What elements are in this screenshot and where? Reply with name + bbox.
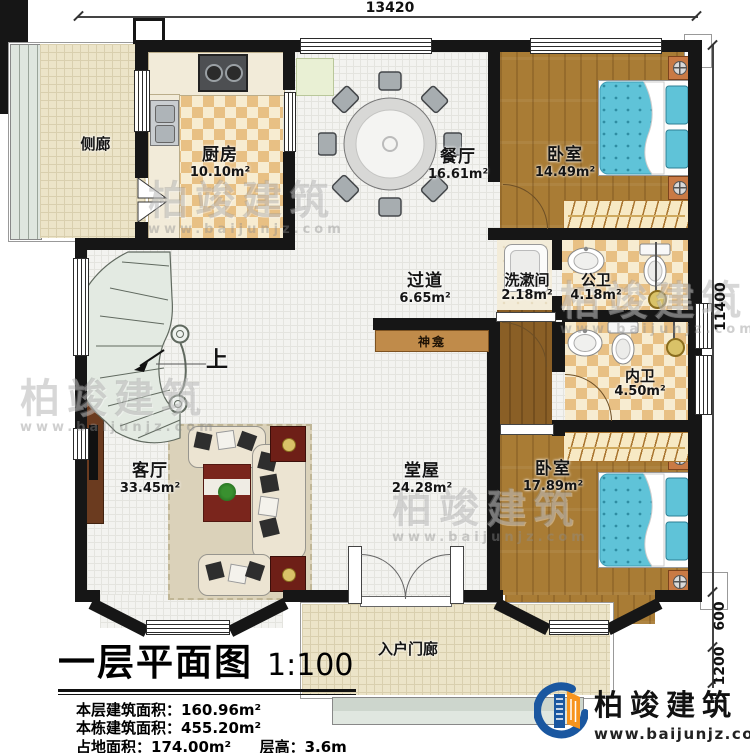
height-label: 层高： bbox=[260, 738, 305, 753]
wall-kitchen-left-2 bbox=[135, 130, 148, 178]
sink-basin bbox=[155, 125, 175, 143]
brand-name: 柏竣建筑 bbox=[594, 682, 750, 724]
floor-plan-canvas: 神龛 bbox=[0, 0, 750, 753]
room-area: 16.61m² bbox=[413, 168, 503, 183]
dim-right-step: 600 bbox=[712, 598, 728, 634]
area-label: 本栋建筑面积： bbox=[76, 719, 181, 737]
bay-bedroom2-window bbox=[549, 620, 609, 635]
room-label-bedroom2: 卧室 17.89m² bbox=[508, 460, 598, 494]
room-area: 6.65m² bbox=[382, 292, 468, 307]
table-lamp-icon bbox=[282, 568, 296, 582]
room-area: 17.89m² bbox=[508, 480, 598, 495]
wall-bath-divider bbox=[562, 310, 688, 322]
room-name: 餐厅 bbox=[413, 148, 503, 168]
room-area: 2.18m² bbox=[491, 289, 563, 304]
side-porch-pillar-top bbox=[0, 0, 28, 28]
plan-scale: 1:100 bbox=[267, 648, 353, 683]
wall-bottom-4 bbox=[655, 590, 702, 602]
room-name: 过道 bbox=[382, 272, 468, 292]
dim-right-main: 11400 bbox=[713, 285, 729, 331]
area-value: 160.96m² bbox=[181, 701, 261, 719]
door-kitchen-sliding bbox=[284, 92, 296, 152]
room-label-washroom: 洗漱间 2.18m² bbox=[491, 272, 563, 304]
shrine-label: 神龛 bbox=[418, 333, 446, 350]
plant-icon bbox=[218, 483, 236, 501]
brand-url: www.baijunjz.com bbox=[594, 725, 750, 743]
sink-basin bbox=[155, 105, 175, 123]
wall-kitchen-left-1 bbox=[135, 40, 148, 70]
room-label-bedroom1: 卧室 14.49m² bbox=[520, 146, 610, 180]
sofa-pillow bbox=[216, 430, 236, 450]
room-label-side-corridor: 侧廊 bbox=[68, 136, 123, 153]
burner-icon bbox=[205, 64, 223, 82]
window-bath-right-1 bbox=[695, 303, 713, 349]
room-label-main-hall: 堂屋 24.28m² bbox=[378, 462, 466, 496]
dim-line-top bbox=[78, 16, 698, 18]
sofa-pillow bbox=[259, 517, 280, 538]
door-frame-bedroom2 bbox=[500, 424, 554, 435]
area-label: 占地面积： bbox=[76, 738, 151, 753]
sofa-pillow bbox=[205, 561, 224, 580]
area-label: 本层建筑面积： bbox=[76, 701, 181, 719]
room-label-dining: 餐厅 16.61m² bbox=[413, 148, 503, 182]
brand-logo-icon bbox=[534, 682, 588, 744]
kitchen-sink bbox=[150, 100, 179, 146]
room-label-living: 客厅 33.45m² bbox=[106, 462, 194, 496]
wall-top-2 bbox=[430, 40, 530, 52]
room-label-kitchen: 厨房 10.10m² bbox=[175, 146, 265, 180]
door-frame-corridor bbox=[496, 312, 556, 322]
window-living-left-2 bbox=[73, 428, 89, 460]
room-name: 卧室 bbox=[520, 146, 610, 166]
kitchen-folding-door bbox=[136, 176, 170, 224]
sink-private-bath bbox=[566, 326, 604, 358]
wall-privbath-bottom bbox=[552, 420, 688, 432]
room-area: 33.45m² bbox=[106, 482, 194, 497]
room-name: 堂屋 bbox=[378, 462, 466, 482]
wall-corridor-right-1 bbox=[552, 322, 565, 372]
shower-head-private bbox=[666, 338, 685, 357]
title-underline-thin bbox=[58, 694, 356, 695]
title-underline-thick bbox=[58, 689, 356, 692]
room-area: 14.49m² bbox=[520, 166, 610, 181]
room-area: 10.10m² bbox=[175, 166, 265, 181]
room-area: 4.50m² bbox=[602, 385, 678, 400]
wall-kitchen-right-2 bbox=[283, 152, 295, 250]
toilet-private-bath bbox=[606, 320, 640, 368]
area-value: 174.00m² bbox=[151, 738, 231, 753]
up-text: 上 bbox=[204, 348, 230, 373]
wall-washroom-divider-1 bbox=[552, 240, 562, 270]
bed-bedroom1 bbox=[598, 80, 696, 176]
area-line-1: 本层建筑面积：160.96m² bbox=[76, 701, 378, 719]
area-value: 455.20m² bbox=[181, 719, 261, 737]
stove bbox=[198, 54, 248, 92]
brand-logo: 柏竣建筑 www.baijunjz.com bbox=[534, 682, 750, 744]
window-dining-top bbox=[300, 38, 432, 54]
lamp-icon bbox=[673, 575, 687, 589]
room-name: 洗漱间 bbox=[491, 272, 563, 289]
wardrobe-bedroom2 bbox=[563, 432, 690, 462]
plan-title: 一层平面图 bbox=[58, 632, 253, 686]
room-area: 4.18m² bbox=[558, 289, 634, 304]
bed-bedroom2 bbox=[598, 472, 696, 568]
room-name: 侧廊 bbox=[68, 136, 123, 153]
side-table-top bbox=[270, 426, 306, 462]
room-label-private-bath: 内卫 4.50m² bbox=[602, 368, 678, 400]
wall-shrine bbox=[373, 318, 487, 330]
entry-door-frame-right bbox=[450, 546, 464, 604]
room-name: 内卫 bbox=[602, 368, 678, 385]
wall-kitchen-right-1 bbox=[283, 40, 295, 90]
room-name: 公卫 bbox=[558, 272, 634, 289]
room-label-hallway: 过道 6.65m² bbox=[382, 272, 468, 306]
lamp-icon bbox=[673, 61, 687, 75]
area-line-2: 本栋建筑面积：455.20m² bbox=[76, 719, 378, 737]
dim-top-value: 13420 bbox=[355, 0, 425, 16]
wardrobe-bedroom1 bbox=[563, 200, 690, 230]
room-name: 客厅 bbox=[106, 462, 194, 482]
height-value: 3.6m bbox=[305, 738, 347, 753]
wall-bedroom1-bottom bbox=[488, 228, 702, 240]
room-name: 厨房 bbox=[175, 146, 265, 166]
shrine-cabinet: 神龛 bbox=[375, 330, 489, 352]
title-block: 一层平面图 1:100 本层建筑面积：160.96m² 本栋建筑面积：455.2… bbox=[58, 632, 378, 753]
side-porch-steps bbox=[10, 44, 42, 240]
window-living-left-1 bbox=[73, 258, 89, 356]
coffee-table-rug bbox=[203, 464, 251, 522]
dim-right-porch: 1200 bbox=[712, 646, 728, 686]
shower-head-public bbox=[648, 290, 667, 309]
room-area: 24.28m² bbox=[378, 482, 466, 497]
sofa-pillow bbox=[245, 561, 265, 581]
stairs-up-label: 上 bbox=[204, 348, 230, 373]
shower-stem-public bbox=[655, 242, 657, 294]
sofa-bottom bbox=[198, 554, 272, 596]
entry-door-frame-left bbox=[348, 546, 362, 604]
window-bedroom1-top bbox=[530, 38, 662, 54]
wall-top-3 bbox=[660, 40, 688, 52]
room-name: 卧室 bbox=[508, 460, 598, 480]
wall-top-1 bbox=[135, 40, 300, 52]
dining-table-set bbox=[318, 70, 462, 218]
sofa-pillow bbox=[258, 496, 279, 517]
table-lamp-icon bbox=[282, 438, 296, 452]
spiral-staircase bbox=[76, 250, 208, 446]
window-kitchen-porch bbox=[134, 70, 150, 132]
burner-icon bbox=[225, 64, 243, 82]
wall-corridor-left bbox=[487, 318, 500, 590]
side-table-bottom bbox=[270, 556, 306, 592]
room-label-public-bath: 公卫 4.18m² bbox=[558, 272, 634, 304]
area-line-3: 占地面积：174.00m² 层高：3.6m bbox=[76, 738, 378, 753]
window-bath-right-2 bbox=[695, 355, 713, 415]
wall-bottom-2 bbox=[283, 590, 348, 602]
sofa-pillow bbox=[260, 474, 280, 494]
wall-under-kitchen bbox=[75, 238, 295, 250]
lamp-icon bbox=[673, 181, 687, 195]
